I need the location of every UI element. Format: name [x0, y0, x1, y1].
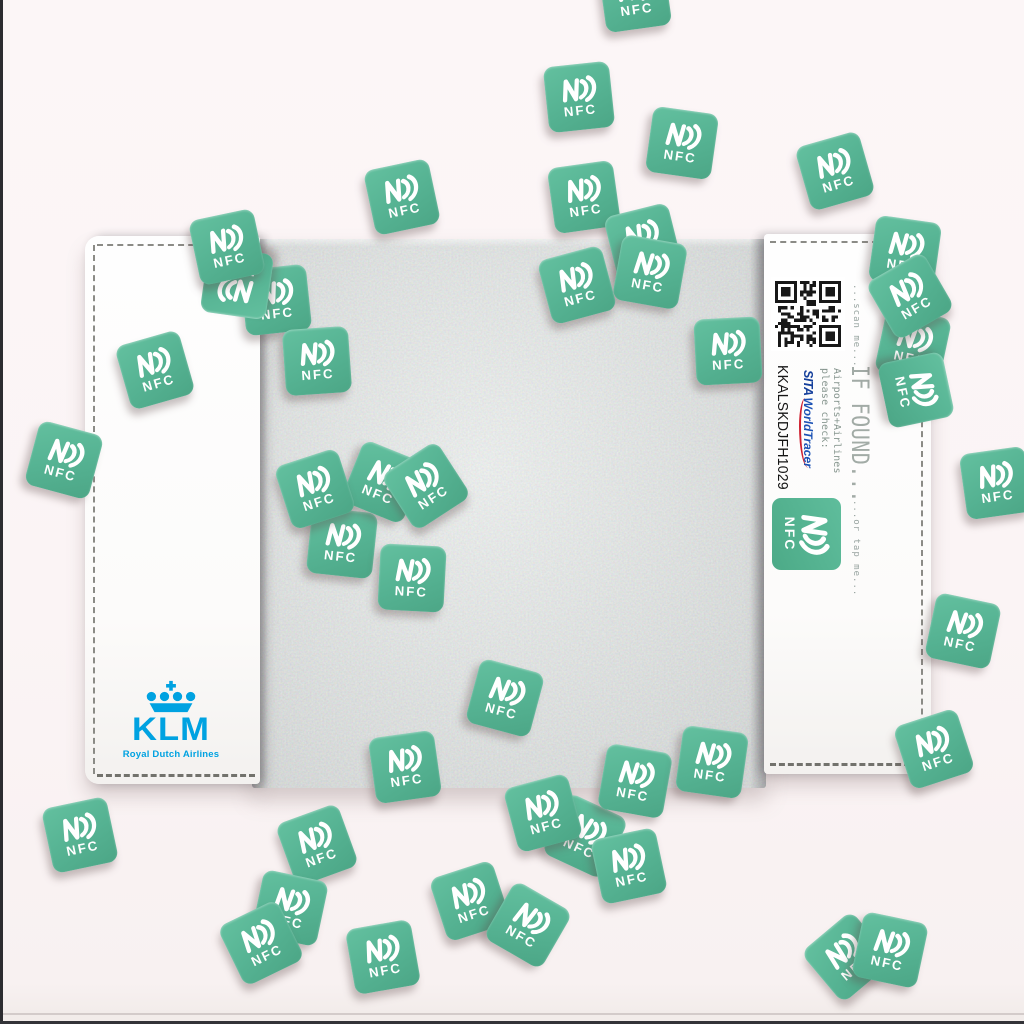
nfc-sticker: NFC: [345, 919, 421, 995]
nfc-sticker: NFC: [892, 707, 975, 790]
nfc-sticker: NFC: [924, 592, 1002, 670]
nfc-sticker: NFC: [597, 743, 673, 819]
nfc-sticker: NFC: [543, 61, 616, 134]
nfc-sticker-field: NFCNFCNFCNFCNFCNFCNFCNFCNFCNFCNFCNFCNFCN…: [0, 0, 1024, 1024]
nfc-sticker: NFC: [41, 796, 119, 874]
product-photo: KLM Royal Dutch Airlines ...scan me... I…: [0, 0, 1024, 1024]
nfc-sticker: NFC: [377, 543, 446, 612]
nfc-sticker: NFC: [693, 316, 762, 385]
nfc-sticker: NFC: [590, 827, 668, 905]
nfc-sticker: NFC: [24, 420, 105, 501]
nfc-sticker: NFC: [645, 106, 720, 181]
nfc-sticker: NFC: [114, 329, 196, 411]
nfc-sticker: NFC: [465, 658, 546, 739]
nfc-sticker: NFC: [368, 730, 443, 805]
nfc-sticker: NFC: [851, 911, 929, 989]
nfc-sticker: NFC: [612, 234, 688, 310]
nfc-sticker: NFC: [188, 208, 266, 286]
nfc-sticker: NFC: [363, 158, 441, 236]
nfc-sticker: NFC: [675, 725, 750, 800]
nfc-sticker: NFC: [537, 245, 618, 326]
nfc-sticker: NFC: [598, 0, 673, 33]
nfc-sticker: NFC: [282, 326, 352, 396]
nfc-sticker: NFC: [959, 446, 1024, 521]
nfc-sticker: NFC: [877, 351, 955, 429]
photo-frame-left-edge: [0, 0, 3, 1024]
nfc-sticker: NFC: [794, 130, 876, 212]
